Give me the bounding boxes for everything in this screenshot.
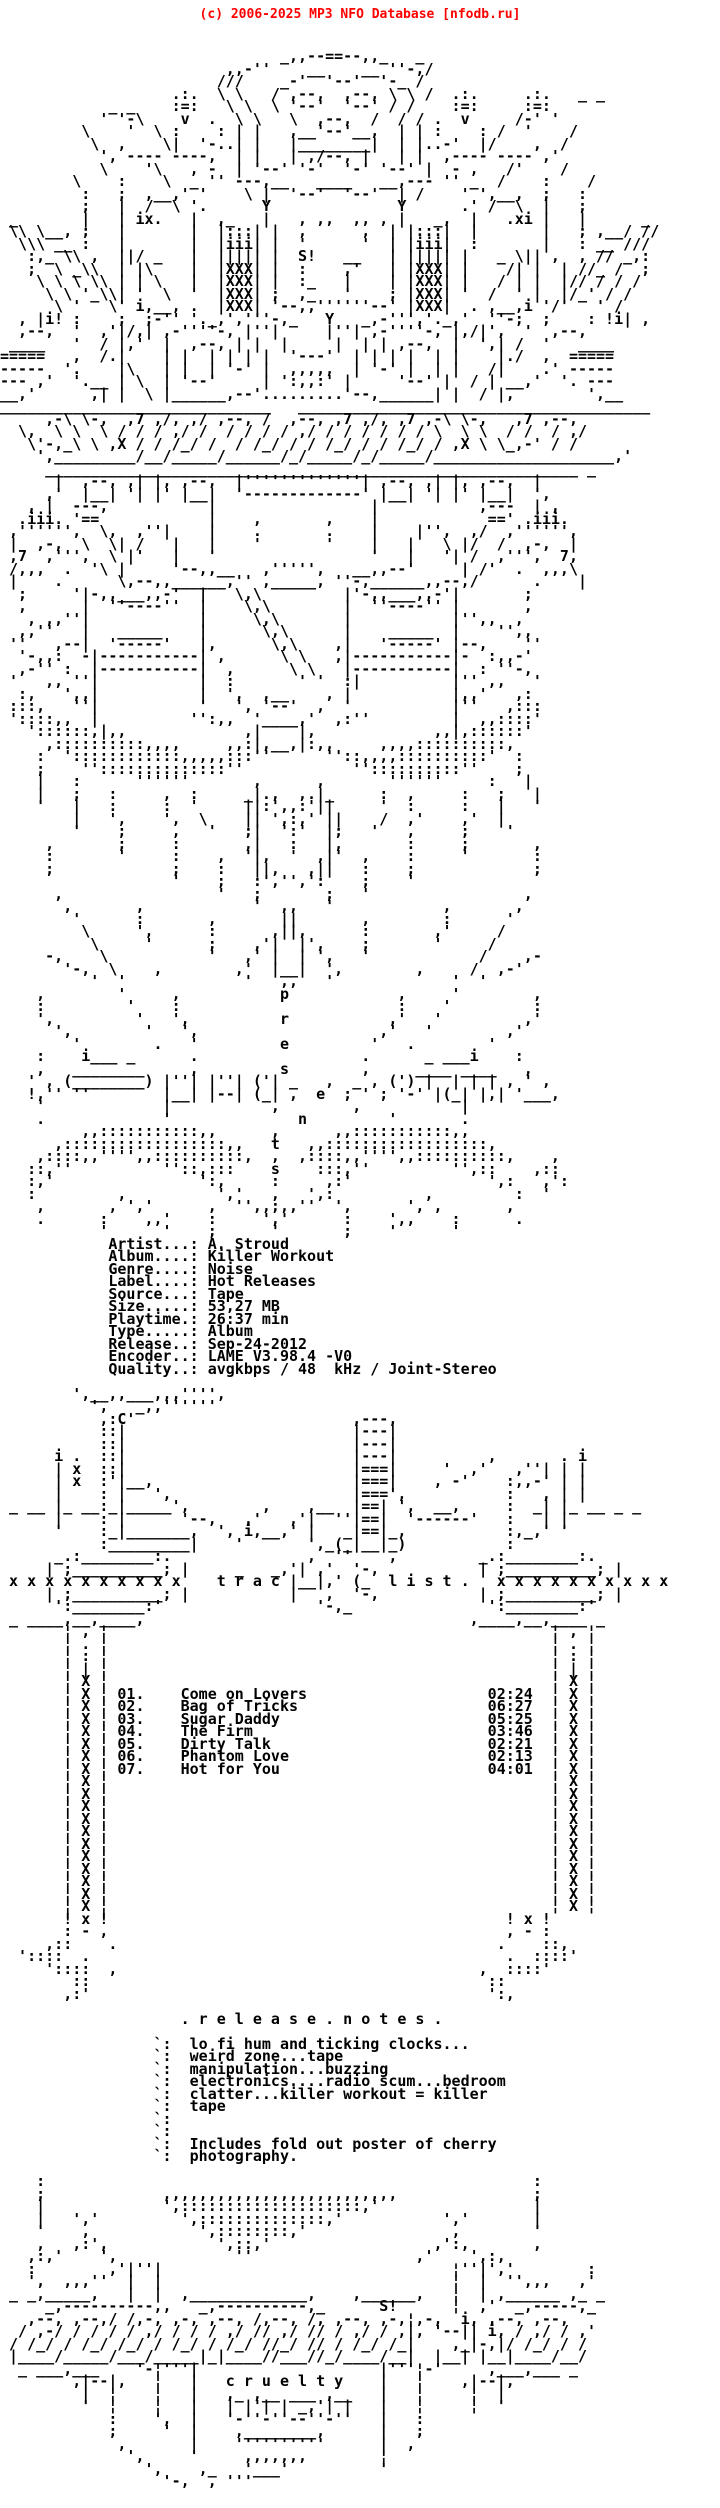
nfodb-copyright-link[interactable]: (c) 2006-2025 MP3 NFO Database [nfodb.ru… <box>200 7 521 22</box>
nfodb-copyright-header: (c) 2006-2025 MP3 NFO Database [nfodb.ru… <box>0 0 720 22</box>
nfo-page: { "page": { "copyright": "(c) 2006-2025 … <box>0 0 720 2508</box>
nfo-ascii-art: _,,--==--,,_ _ ,,-'' __ __ ''-,/ /// _-'… <box>0 50 720 2488</box>
